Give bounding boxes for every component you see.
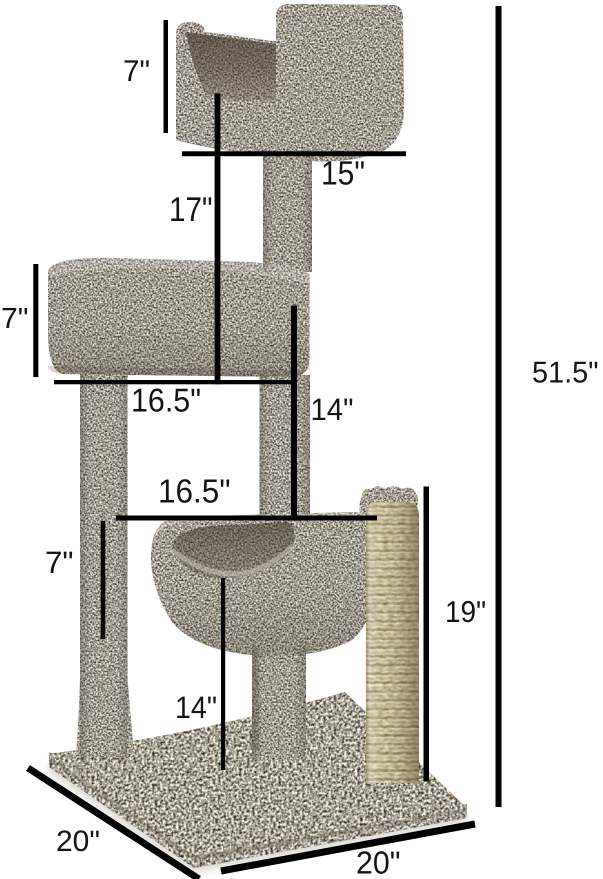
svg-text:15": 15" [321, 156, 365, 193]
svg-text:17": 17" [169, 191, 213, 229]
svg-text:7": 7" [1, 303, 29, 335]
svg-text:7": 7" [123, 55, 150, 88]
svg-text:16.5": 16.5" [158, 474, 231, 511]
svg-text:51.5": 51.5" [532, 357, 599, 390]
svg-text:20": 20" [356, 845, 401, 879]
svg-text:14": 14" [175, 690, 217, 725]
svg-text:7": 7" [45, 545, 74, 580]
svg-text:20": 20" [56, 825, 100, 858]
svg-text:14": 14" [311, 392, 354, 427]
svg-text:19": 19" [445, 596, 486, 629]
svg-text:16.5": 16.5" [131, 382, 201, 419]
